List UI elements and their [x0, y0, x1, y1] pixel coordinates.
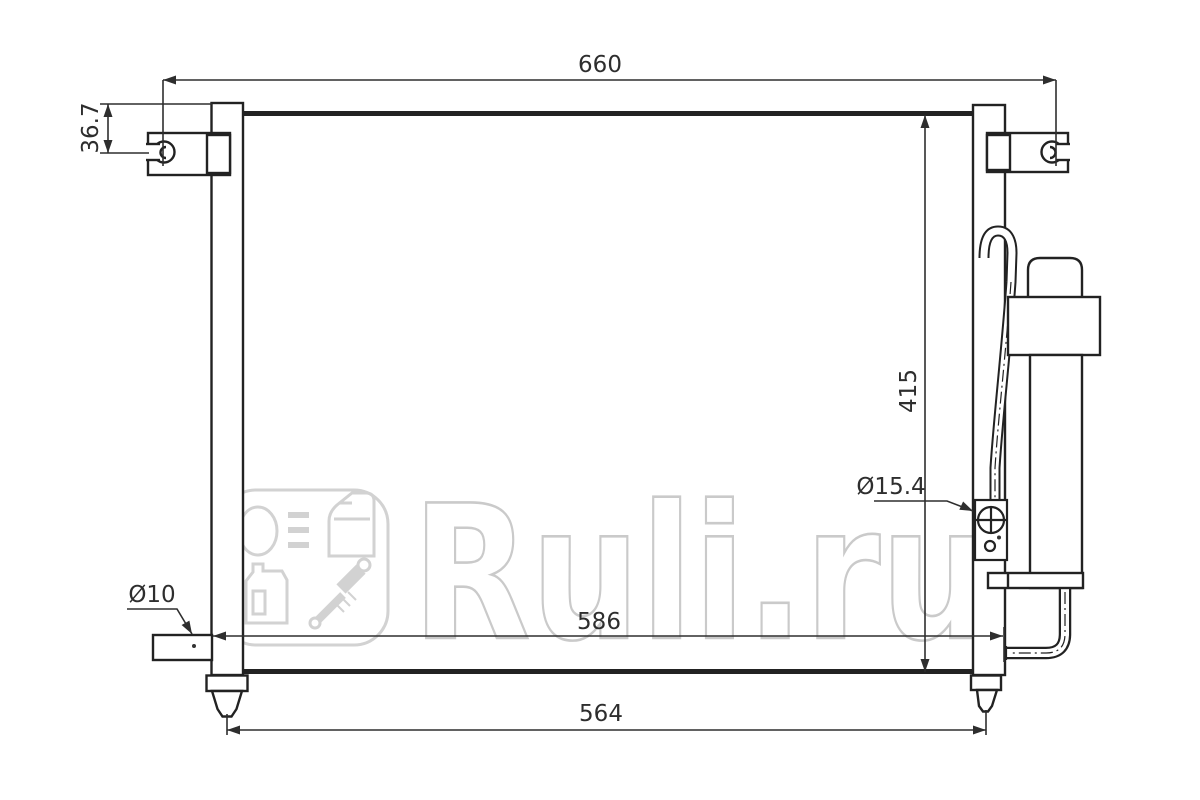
- drier-cap: [1028, 258, 1082, 300]
- condenser-diagram: Ruli.ru: [0, 0, 1200, 800]
- dim-label-15-4: Ø15.4: [856, 474, 925, 500]
- drier-collar: [1008, 297, 1100, 355]
- shock-absorber-icon: [310, 559, 370, 628]
- drier-strap: [988, 573, 1083, 588]
- drier-body: [1030, 355, 1082, 588]
- dim-overall-width: 660: [163, 52, 1056, 166]
- dim-label-415: 415: [896, 369, 922, 413]
- receiver-drier: [1008, 258, 1100, 588]
- dim-label-660: 660: [578, 52, 622, 78]
- dim-label-10: Ø10: [128, 582, 175, 608]
- dim-label-586: 586: [577, 609, 621, 635]
- dim-label-36-7: 36.7: [78, 102, 104, 153]
- drier-outlet-pipe: [1006, 588, 1065, 660]
- headlight-icon: [239, 507, 309, 555]
- left-mount-pin: [207, 676, 248, 717]
- right-mount-pin: [971, 676, 1001, 712]
- oil-canister-icon: [246, 564, 287, 623]
- dim-label-564: 564: [579, 701, 623, 727]
- outlet-stub-pipe: [153, 635, 212, 660]
- drawing-canvas: Ruli.ru: [0, 0, 1200, 800]
- left-mount-bracket: [145, 133, 230, 175]
- car-door-icon: [329, 493, 374, 556]
- callout-pipe-diameter: Ø10: [127, 582, 192, 634]
- dim-mount-span: 564: [227, 701, 986, 735]
- left-header-tank: [212, 103, 244, 675]
- fitting-block: [975, 500, 1007, 560]
- stub-center-mark: [192, 644, 196, 648]
- right-mount-bracket: [987, 133, 1072, 172]
